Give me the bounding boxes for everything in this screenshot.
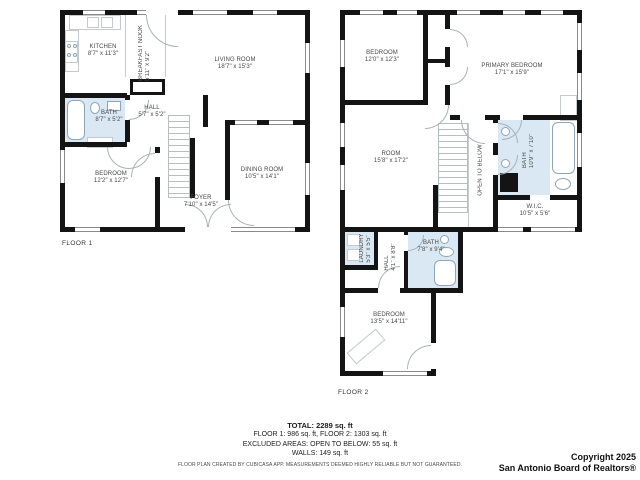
kitchen-sink (87, 17, 99, 28)
pantry-closet (130, 79, 165, 95)
window (360, 10, 383, 15)
window (340, 165, 345, 190)
room-label-bath-bottom: BATH7'8" x 9'4" (417, 240, 444, 254)
window (577, 73, 582, 100)
wall-segment (450, 115, 460, 120)
floor2-plan-strip: LAUNDRY5'3" x 5'5" HALL4'1" x 8'8" BATH7… (340, 227, 463, 293)
window (228, 227, 295, 232)
floor2-caption: FLOOR 2 (338, 389, 369, 396)
window (383, 371, 427, 376)
bathtub-fixture (434, 260, 456, 286)
door-arc (450, 29, 468, 47)
window (340, 40, 345, 67)
window (503, 10, 525, 15)
stove-burner (73, 53, 77, 57)
floor-areas: FLOOR 1: 986 sq. ft, FLOOR 2: 1303 sq. f… (0, 430, 640, 440)
door-opening (431, 343, 436, 369)
stove-burner (73, 44, 77, 48)
copyright-org: San Antonio Board of Realtors® (499, 463, 636, 474)
door-arc (450, 67, 468, 85)
room-label-bedroom-top: BEDROOM12'0" x 12'3" (365, 50, 399, 64)
excluded-areas: EXCLUDED AREAS: OPEN TO BELOW: 55 sq. ft (0, 440, 640, 450)
room-label-dining-room: DINING ROOM10'5" x 14'1" (241, 167, 283, 181)
wall-segment (65, 93, 127, 98)
wall-segment (203, 95, 208, 127)
room-label-primary-bedroom: PRIMARY BEDROOM17'1" x 15'9" (481, 63, 542, 77)
room-label-wic: W.I.C.10'5" x 5'6" (520, 204, 551, 218)
wall-segment (190, 138, 195, 198)
room-label-foyer: FOYER7'10" x 14'5" (184, 195, 218, 209)
window (397, 10, 417, 15)
stairs (168, 115, 190, 198)
wall-segment (225, 120, 230, 200)
window (577, 133, 582, 167)
door-arc (228, 200, 254, 226)
room-label-bath: BATH8'7" x 5'2" (95, 110, 122, 124)
room-label-bath-top: BATH10'9" x 7'10" (522, 134, 536, 168)
door-opening (185, 227, 231, 232)
floor2-plan-upper: BEDROOM12'0" x 12'3" PRIMARY BEDROOM17'1… (340, 10, 582, 232)
room-label-room: ROOM15'8" x 17'2" (374, 151, 408, 165)
window (498, 227, 523, 232)
total-area: TOTAL: 2289 sq. ft (0, 421, 640, 430)
floor-plan-page: KITCHEN8'7" x 11'3" BREAKFAST NOOK5'11" … (0, 0, 640, 480)
kitchen-sink (101, 17, 113, 28)
window (269, 120, 293, 125)
room-label-hall: HALL5'7" x 5'2" (138, 105, 165, 119)
floor1-plan: KITCHEN8'7" x 11'3" BREAKFAST NOOK5'11" … (60, 10, 310, 232)
wall-segment (345, 100, 425, 105)
room-label-bedroom-bottom: BEDROOM13'5" x 14'11" (370, 312, 407, 326)
wall-segment (485, 115, 493, 120)
floor1-caption: FLOOR 1 (62, 240, 93, 247)
window (457, 10, 480, 15)
window (541, 10, 563, 15)
bathtub-fixture (67, 100, 85, 140)
toilet-fixture (555, 178, 571, 190)
stove-burner (67, 53, 71, 57)
rug-furniture (347, 329, 386, 365)
door-arc (107, 147, 129, 169)
door-opening (378, 288, 400, 293)
copyright-notice: Copyright 2025 San Antonio Board of Real… (499, 452, 636, 473)
wall-segment (345, 265, 378, 270)
copyright-year: Copyright 2025 (499, 452, 636, 463)
room-label-hall2: HALL4'1" x 8'8" (384, 243, 398, 270)
room-divider-line (125, 15, 126, 77)
floor2-plan-bedroom: BEDROOM13'5" x 14'11" (340, 288, 436, 376)
room-label-open-to-below: OPEN TO BELOW (478, 144, 485, 195)
door-opening (155, 153, 160, 177)
window (60, 150, 65, 183)
chimney-block (500, 173, 518, 192)
window (305, 43, 310, 73)
window (305, 163, 310, 195)
window (83, 10, 105, 15)
bathtub-fixture (552, 122, 575, 174)
door-arc (407, 345, 431, 369)
stairs (438, 123, 468, 213)
stove-burner (67, 44, 71, 48)
room-label-bedroom: BEDROOM12'2" x 12'7" (94, 171, 128, 185)
window (75, 227, 100, 232)
window (193, 10, 227, 15)
window (340, 123, 345, 147)
window (577, 23, 582, 50)
door-opening (530, 195, 550, 200)
window (235, 120, 257, 125)
room-label-breakfast-nook: BREAKFAST NOOK5'11" x 9'2" (138, 25, 152, 81)
window (340, 307, 345, 337)
room-label-living-room: LIVING ROOM18'7" x 15'3" (214, 57, 255, 71)
window (253, 10, 277, 15)
wall-segment (423, 59, 450, 63)
room-label-laundry: LAUNDRY5'3" x 5'5" (359, 233, 373, 262)
window (531, 227, 575, 232)
room-label-kitchen: KITCHEN8'7" x 11'3" (88, 44, 118, 58)
